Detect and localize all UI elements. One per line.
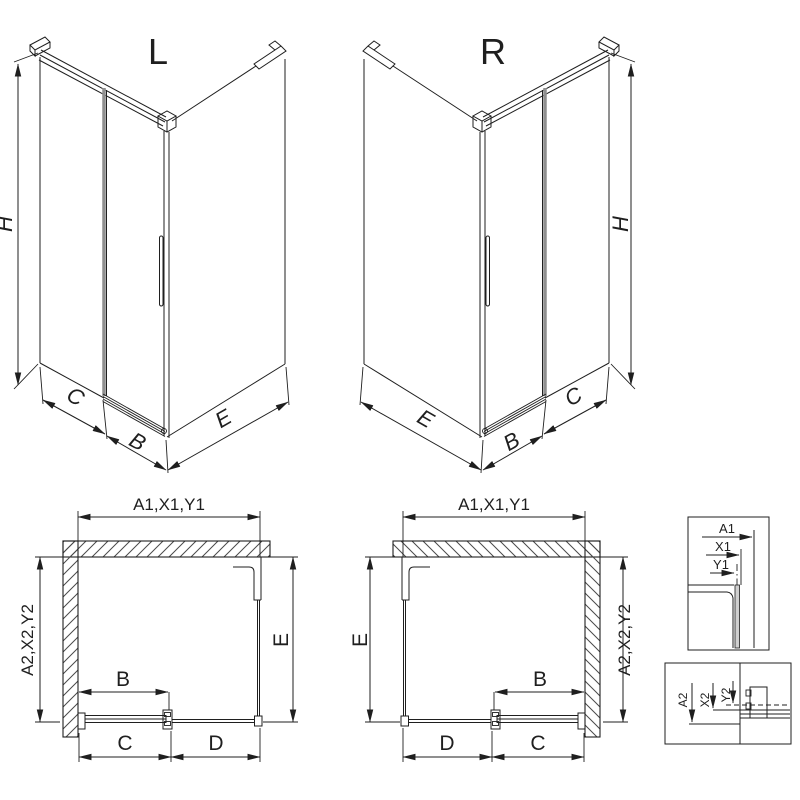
dim-label-e: E [349,633,372,647]
dim-label-h: H [0,216,17,232]
dim-label-c: C [530,732,545,755]
dim-label-b: B [125,427,150,456]
dim-label-b: B [499,427,524,456]
drawing-canvas: L H C B E R H C B E A1,X1,Y1 A2,X2,Y2 E … [0,0,800,800]
variant-label-left: L [148,31,168,72]
dim-label-a1x1y1: A1,X1,Y1 [458,495,530,514]
dim-label-c: C [560,382,586,412]
glass-section [735,585,740,648]
detail-box-bottom-rail: A2 X2 Y2 [665,663,791,744]
dim-label-e: E [270,633,293,647]
dim-label-e: E [413,404,438,433]
dim-label-a1x1y1: A1,X1,Y1 [133,495,205,514]
iso-view-right: R H C B E [360,31,635,473]
detail-box-wall-profile: A1 X1 Y1 [688,517,769,650]
plan-view-left: A1,X1,Y1 A2,X2,Y2 E B C D [18,495,298,762]
dim-label-b: B [116,668,130,691]
dim-label-c: C [63,382,89,412]
detail-label-a1: A1 [719,521,735,536]
detail-label-y1: Y1 [713,557,729,572]
iso-view-left: L H C B E [0,31,289,473]
dim-label-b: B [533,668,547,691]
iso-geometry-left [14,37,289,473]
dim-label-a2x2y2: A2,X2,Y2 [615,604,634,676]
iso-geometry-right [360,37,635,473]
dim-label-c: C [117,732,132,755]
dim-label-h: H [608,216,633,232]
plan-geometry-left [35,511,298,762]
dim-label-d: D [439,732,454,755]
detail-label-x2: X2 [698,692,712,707]
detail-label-a2: A2 [676,692,690,707]
plan-view-right: A1,X1,Y1 A2,X2,Y2 E B C D [349,495,634,762]
dim-label-e: E [211,404,236,433]
dim-label-d: D [208,732,223,755]
detail-label-y2: Y2 [719,687,733,702]
dim-label-a2x2y2: A2,X2,Y2 [18,604,37,676]
variant-label-right: R [480,31,506,72]
wall-profile-section [689,585,735,648]
rail-profile-section [750,687,767,718]
plan-geometry-right [365,511,628,762]
detail-label-x1: X1 [715,539,731,554]
